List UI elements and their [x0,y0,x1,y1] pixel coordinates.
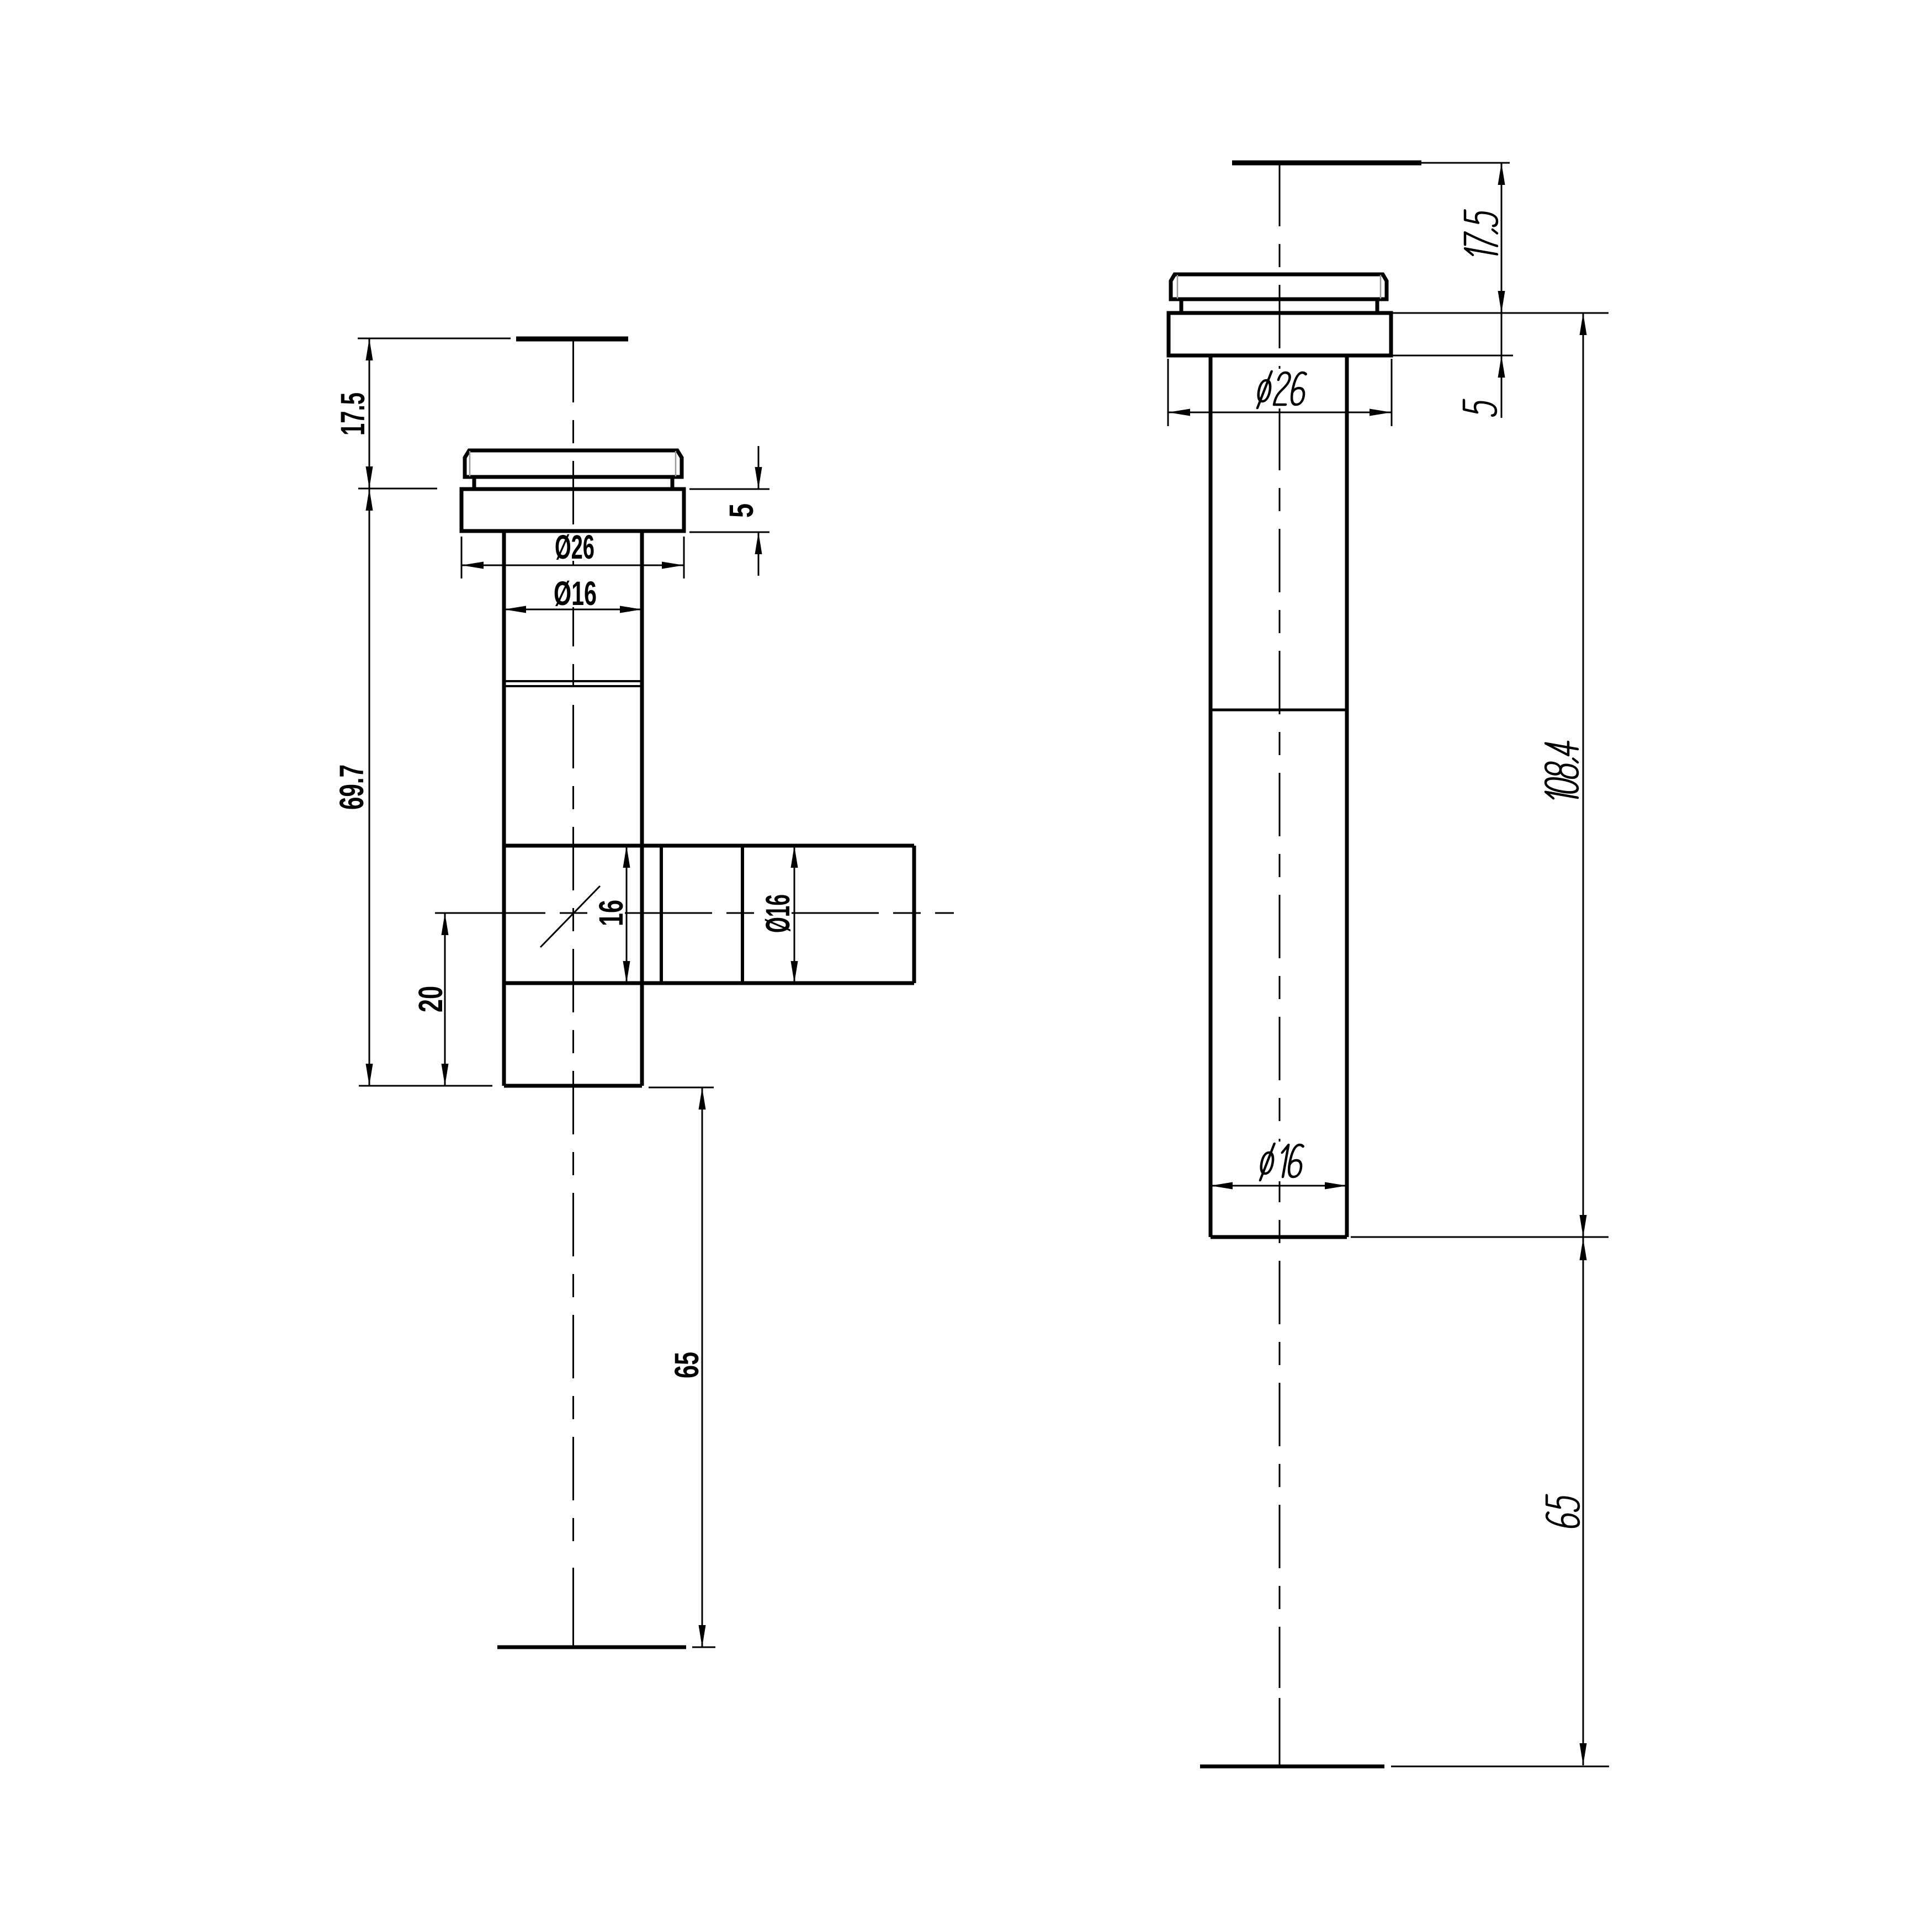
svg-text:65: 65 [668,1352,705,1378]
svg-text:Ø26: Ø26 [555,528,595,566]
svg-text:5: 5 [723,503,760,518]
svg-text:Ø16: Ø16 [759,894,797,933]
svg-text:Ø16: Ø16 [554,575,597,612]
svg-text:16: 16 [592,900,630,926]
svg-text:17.5: 17.5 [334,392,371,436]
svg-text:20: 20 [412,986,449,1012]
svg-text:69.7: 69.7 [333,765,370,810]
